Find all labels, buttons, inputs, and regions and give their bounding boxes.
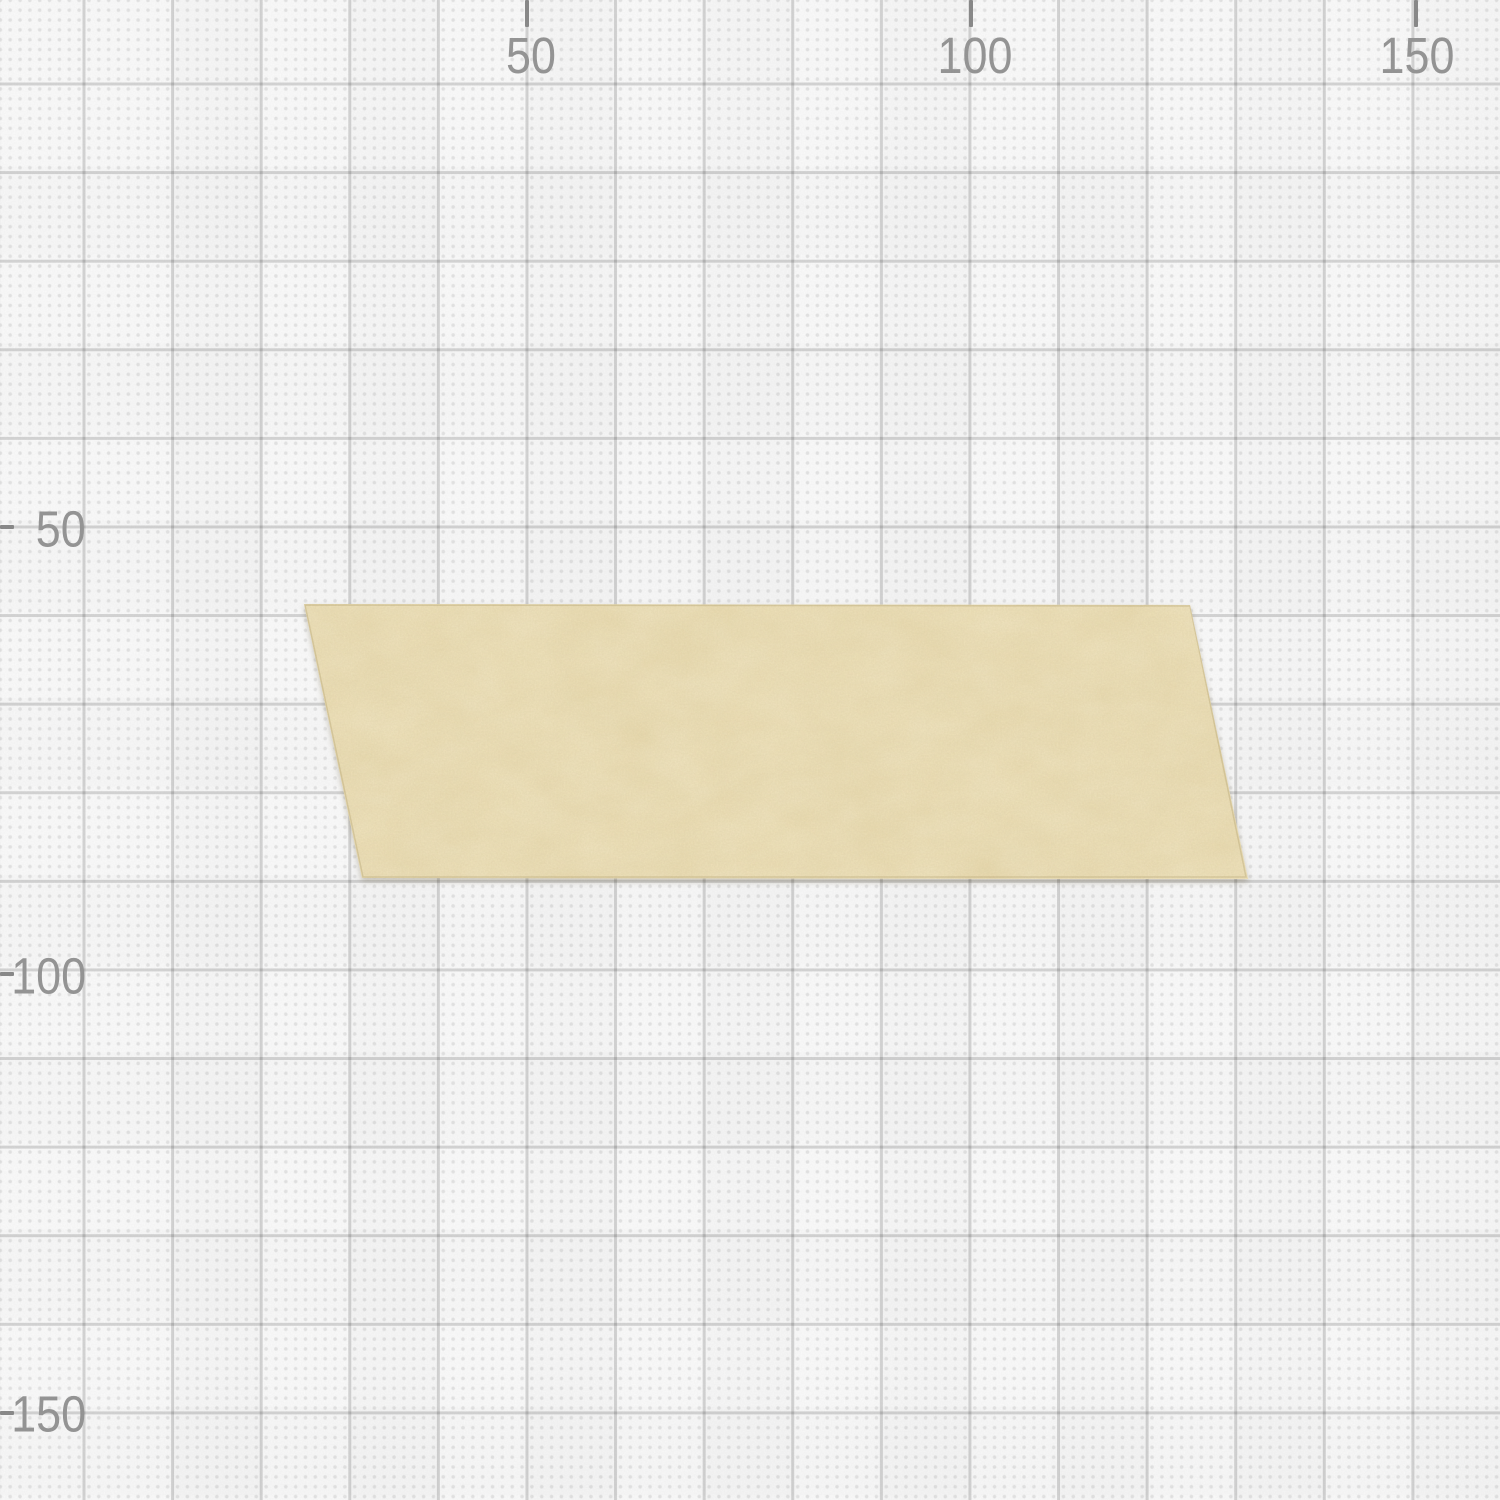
tape-strip[interactable] [304,604,1248,879]
grid-canvas[interactable]: 50 100 150 50 100 150 [0,0,1500,1500]
left-ruler-label-100: 100 [11,951,86,1002]
top-ruler-label-50: 50 [506,30,556,81]
top-ruler-tick-100 [969,0,973,27]
top-ruler-label-100: 100 [938,30,1013,81]
top-ruler-label-150: 150 [1380,30,1455,81]
left-ruler-label-50: 50 [36,504,86,555]
left-ruler-label-50-box: 50 [0,504,86,555]
tape-texture [304,604,1248,879]
tape-strip-surface [304,604,1248,879]
left-ruler-label-150-box: 150 [0,1389,86,1440]
left-ruler-label-150: 150 [11,1389,86,1440]
left-ruler-label-100-box: 100 [0,951,86,1002]
top-ruler-tick-50 [525,0,529,27]
top-ruler-tick-150 [1414,0,1418,27]
